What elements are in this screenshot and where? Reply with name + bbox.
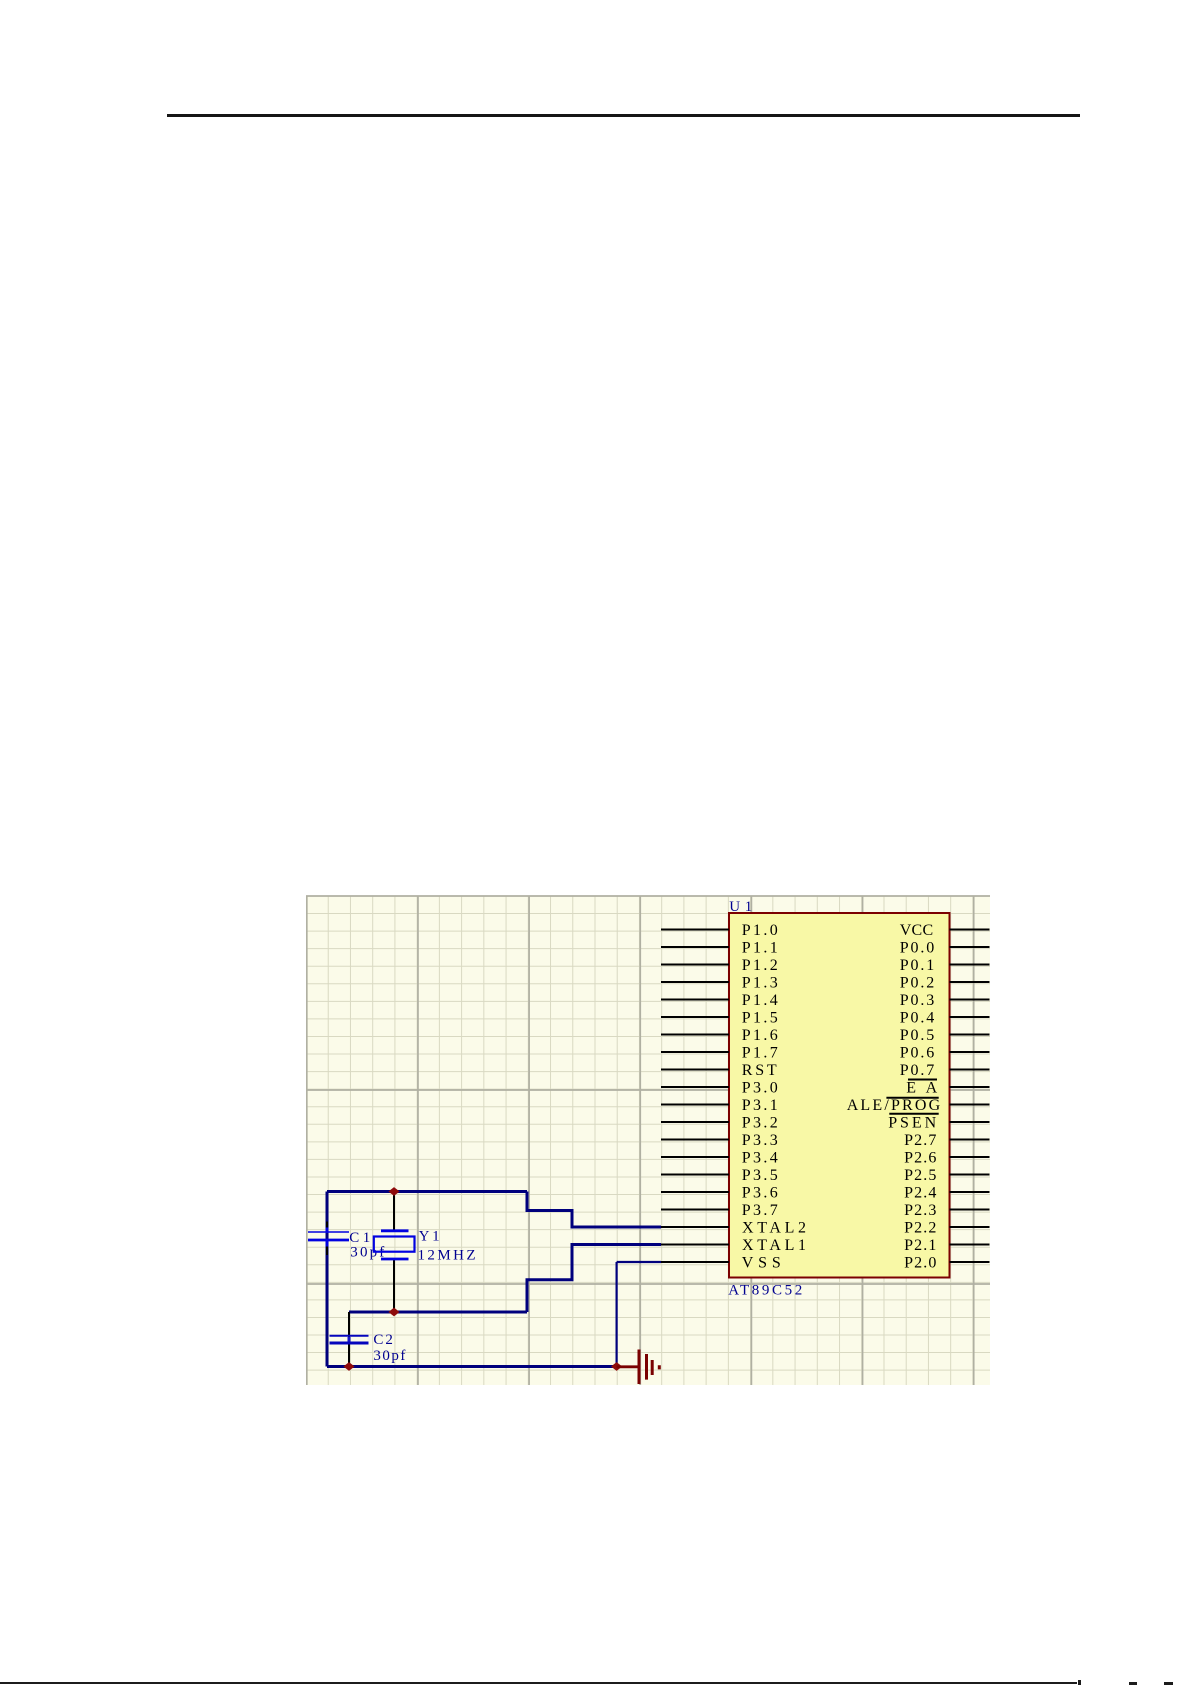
svg-text:C2: C2 xyxy=(373,1332,393,1348)
svg-text:RST: RST xyxy=(742,1062,777,1079)
svg-text:P1.3: P1.3 xyxy=(742,975,778,992)
svg-text:VCC: VCC xyxy=(900,922,934,939)
svg-text:P1.4: P1.4 xyxy=(742,992,778,1009)
svg-text:P3.0: P3.0 xyxy=(742,1080,778,1097)
svg-text:PSEN: PSEN xyxy=(888,1115,936,1132)
svg-text:P1.6: P1.6 xyxy=(742,1027,778,1044)
svg-text:P3.1: P3.1 xyxy=(742,1097,778,1114)
svg-text:AT89C52: AT89C52 xyxy=(728,1283,802,1299)
svg-text:P2.5: P2.5 xyxy=(904,1167,936,1184)
svg-text:P3.7: P3.7 xyxy=(742,1202,778,1219)
svg-text:P1.2: P1.2 xyxy=(742,957,778,974)
svg-text:P2.4: P2.4 xyxy=(904,1185,936,1202)
svg-text:P3.2: P3.2 xyxy=(742,1115,778,1132)
svg-text:P1.1: P1.1 xyxy=(742,940,778,957)
svg-text:P0.3: P0.3 xyxy=(900,992,935,1009)
svg-text:P3.6: P3.6 xyxy=(742,1185,778,1202)
svg-text:P1.5: P1.5 xyxy=(742,1010,778,1027)
svg-text:P2.0: P2.0 xyxy=(904,1255,936,1272)
svg-text:30pf: 30pf xyxy=(373,1348,405,1364)
svg-text:P3.4: P3.4 xyxy=(742,1150,778,1167)
svg-text:Y1: Y1 xyxy=(419,1229,440,1245)
svg-text:P1.7: P1.7 xyxy=(742,1045,778,1062)
svg-text:P2.1: P2.1 xyxy=(904,1237,936,1254)
svg-text:P0.5: P0.5 xyxy=(900,1027,935,1044)
svg-text:P1.0: P1.0 xyxy=(742,922,778,939)
svg-text:P0.4: P0.4 xyxy=(900,1010,935,1027)
svg-text:P2.7: P2.7 xyxy=(904,1132,936,1149)
svg-text:P2.2: P2.2 xyxy=(904,1220,936,1237)
svg-text:P3.5: P3.5 xyxy=(742,1167,778,1184)
svg-text:P3.3: P3.3 xyxy=(742,1132,778,1149)
svg-text:P0.7: P0.7 xyxy=(900,1062,935,1079)
svg-text:P2.6: P2.6 xyxy=(904,1150,936,1167)
svg-text:P0.2: P0.2 xyxy=(900,975,935,992)
svg-text:P0.0: P0.0 xyxy=(900,940,935,957)
svg-text:VSS: VSS xyxy=(742,1255,781,1272)
svg-text:P0.1: P0.1 xyxy=(900,957,935,974)
svg-text:P0.6: P0.6 xyxy=(900,1045,935,1062)
svg-text:P2.3: P2.3 xyxy=(904,1202,936,1219)
